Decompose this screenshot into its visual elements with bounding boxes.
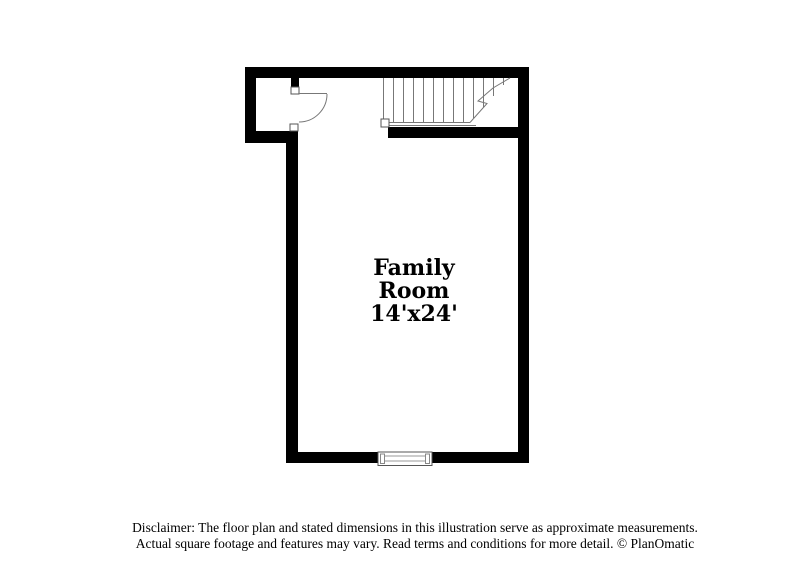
staircase — [381, 78, 510, 127]
wall-right — [518, 67, 529, 463]
window — [378, 452, 432, 466]
wall-top — [245, 67, 529, 78]
door-jamb-top — [291, 87, 299, 94]
door-swing-arc — [299, 94, 327, 122]
wall-left-main — [286, 131, 298, 463]
wall-alcove-bottom — [245, 131, 298, 143]
window-cap-right — [426, 454, 430, 464]
window-glass — [384, 456, 428, 461]
room-label: Family Room 14'x24' — [314, 257, 514, 326]
disclaimer-line-1: Disclaimer: The floor plan and stated di… — [25, 520, 800, 536]
disclaimer-line-2: Actual square footage and features may v… — [25, 536, 800, 552]
disclaimer: Disclaimer: The floor plan and stated di… — [25, 520, 800, 552]
room-dimensions: 14'x24' — [314, 303, 514, 326]
window-cap-left — [381, 454, 385, 464]
room-name-line-2: Room — [314, 280, 514, 303]
wall-door-stub — [291, 78, 299, 87]
room-name-line-1: Family — [314, 257, 514, 280]
stair-jamb — [381, 119, 389, 127]
door — [290, 87, 327, 131]
door-jamb-bottom — [290, 124, 298, 131]
wall-under-stairs — [388, 127, 518, 138]
